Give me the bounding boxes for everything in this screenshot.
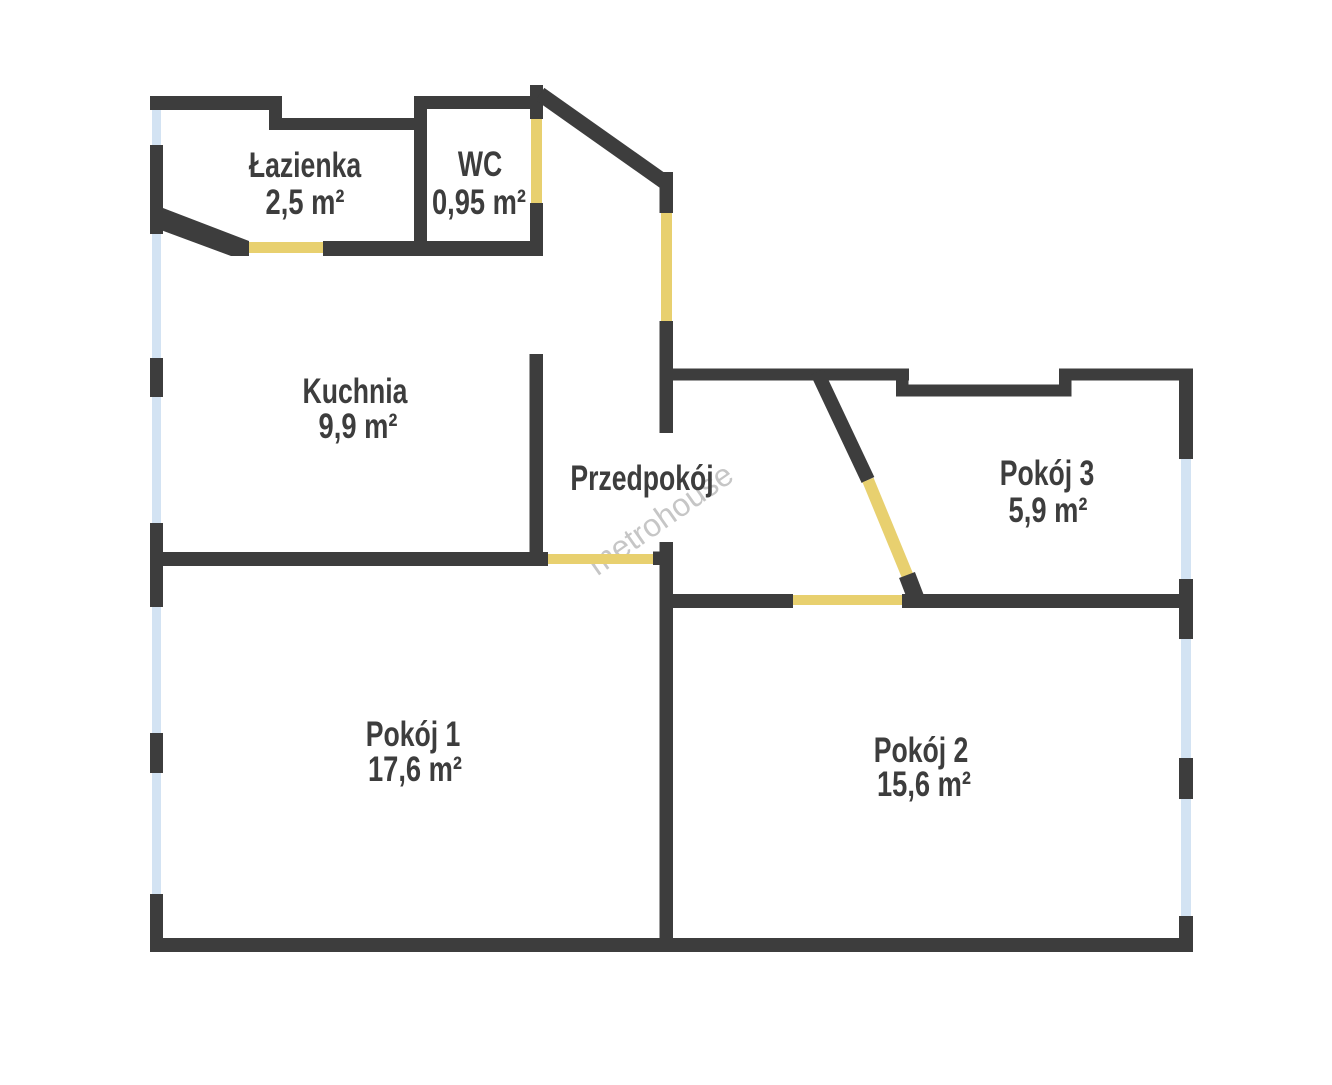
- svg-text:17,6 m²: 17,6 m²: [368, 750, 462, 789]
- svg-text:Kuchnia: Kuchnia: [303, 371, 409, 410]
- svg-text:15,6 m²: 15,6 m²: [877, 765, 971, 804]
- svg-text:9,9 m²: 9,9 m²: [319, 407, 398, 446]
- svg-text:5,9 m²: 5,9 m²: [1009, 491, 1088, 530]
- svg-text:2,5 m²: 2,5 m²: [266, 183, 345, 222]
- svg-text:Przedpokój: Przedpokój: [570, 458, 713, 497]
- svg-text:WC: WC: [458, 144, 502, 183]
- svg-text:Łazienka: Łazienka: [249, 145, 362, 184]
- svg-text:Pokój 1: Pokój 1: [366, 714, 461, 753]
- svg-text:0,95 m²: 0,95 m²: [432, 183, 526, 222]
- svg-text:Pokój 3: Pokój 3: [1000, 453, 1095, 492]
